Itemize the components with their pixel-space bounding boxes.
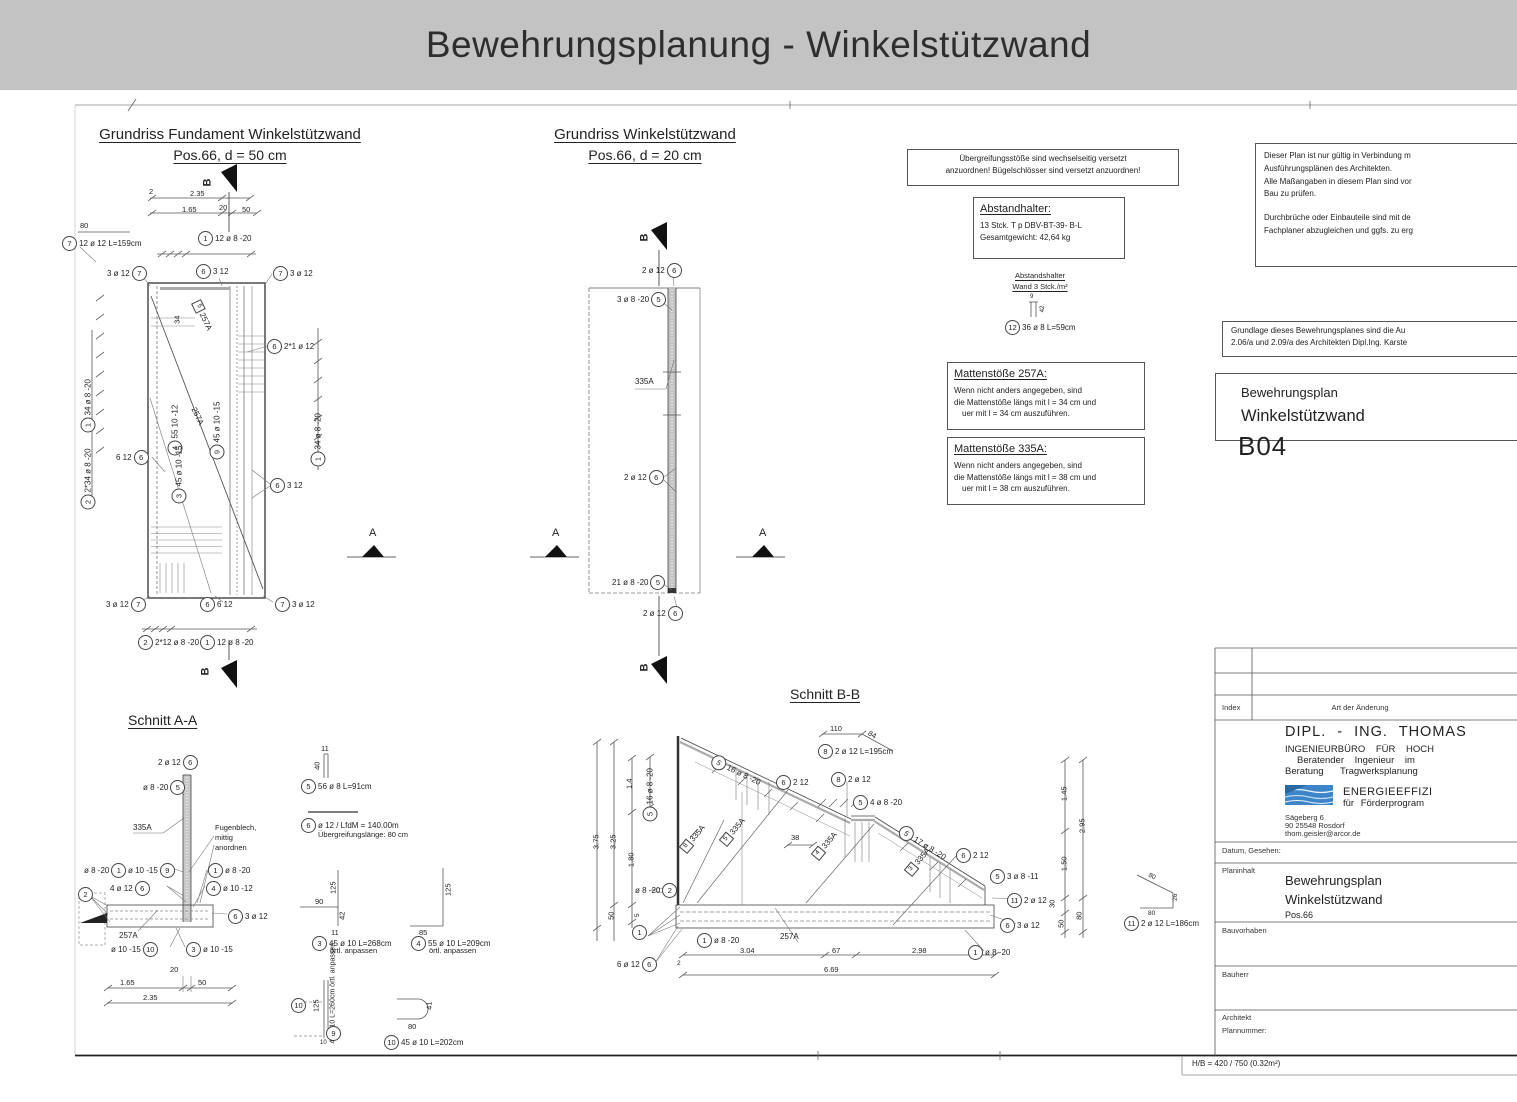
pos-bubble: 11 <box>1124 916 1139 931</box>
pos-bubble: 7 <box>132 266 147 281</box>
pos-bubble: 6 <box>301 818 316 833</box>
pos-bubble: 6 <box>668 606 683 621</box>
pos-bubble: 1 <box>111 863 126 878</box>
pos-bubble: 7 <box>62 236 77 251</box>
bauherr-label: Bauherr <box>1222 970 1249 979</box>
callout: ø 8 -205 <box>143 780 185 795</box>
wallplan-subtitle: Pos.66, d = 20 cm <box>545 147 745 163</box>
callout-text: 3 12 <box>213 268 229 276</box>
callout-text: 45 ø 10 -15 <box>213 402 221 443</box>
callout-text: ø 8 -20 <box>985 949 1010 957</box>
fundament-subtitle: Pos.66, d = 50 cm <box>86 147 374 163</box>
pos-bubble: 5 <box>643 807 658 822</box>
shape-dim: 26 <box>1173 891 1180 903</box>
shape-dim: 90 <box>315 898 323 906</box>
dim-label: 2 <box>677 961 681 968</box>
callout-vertical: 345 ø 10 -15 <box>172 424 187 504</box>
note-line: Dieser Plan ist nur gültig in Verbindung… <box>1264 150 1517 163</box>
address-line: thom.geisler@arcor.de <box>1285 829 1361 838</box>
pos-bubble: 9 <box>210 445 225 460</box>
dim-label: 1.4 <box>625 773 633 795</box>
section-a-letter: A <box>369 527 376 539</box>
note-line: Gesamtgewicht: 42,64 kg <box>980 232 1118 244</box>
plan-code: B04 <box>1238 431 1287 462</box>
note-wand: Abstandshalter Wand 3 Stck./m² <box>998 270 1082 293</box>
pos-bubble: 10 <box>291 998 306 1013</box>
schnitt-aa-title: Schnitt A-A <box>128 712 197 728</box>
dim-label: 67 <box>832 947 840 955</box>
callout: 112 ø 12 L=186cm <box>1124 916 1199 931</box>
shape-label: 9 <box>326 1026 341 1041</box>
plannummer-label: Plannummer: <box>1222 1026 1267 1035</box>
pos-bubble: 6 <box>200 597 215 612</box>
callout: 63 12 <box>196 264 229 279</box>
callout-text: 2*34 ø 8 -20 <box>84 448 92 492</box>
pos-bubble: 6 <box>956 848 971 863</box>
callout: 21 ø 8 -205 <box>612 575 665 590</box>
callout-text: ø 8 -20 <box>714 937 739 945</box>
note-stoesse: Übergreifungsstöße sind wechselseitig ve… <box>907 149 1179 186</box>
dim-label: 3.25 <box>609 829 617 855</box>
pos-bubble: 1 <box>632 925 647 940</box>
callout-vertical: 134 ø 8 -20 <box>311 397 326 467</box>
callout-text: ø 10 -12 <box>223 885 253 893</box>
shape-label: 10 <box>291 998 306 1013</box>
dim-label: 80 <box>80 222 88 230</box>
callout: 62 12 <box>956 848 989 863</box>
callout: 53 ø 8 -11 <box>990 869 1038 884</box>
dim-label: 50 <box>198 979 206 987</box>
callout: 1ø 8 -20 <box>697 933 739 948</box>
spacer-symbol <box>1029 302 1038 317</box>
note-line: Wenn nicht anders angegeben, sind <box>954 460 1138 472</box>
callout-text: 3 ø 8 -11 <box>1007 873 1038 881</box>
pos-bubble: 2 <box>662 883 677 898</box>
note-line: mittig <box>215 833 256 843</box>
callout: 1ø 8 -20 <box>208 863 250 878</box>
note-line: Wand 3 Stck./m² <box>998 281 1082 292</box>
note-line: Ausführungsplänen des Architekten. <box>1264 163 1517 176</box>
company-logo <box>1285 785 1333 805</box>
dim-label: 3.75 <box>592 829 600 855</box>
callout: 62*1 ø 12 <box>267 339 314 354</box>
pos-bubble: 6 <box>270 478 285 493</box>
schnitt-bb-title: Schnitt B-B <box>790 686 860 702</box>
section-a-markers <box>347 545 785 557</box>
callout-text: ø 12 / LfdM = 140.00m <box>318 822 399 830</box>
pos-bubble: 5 <box>301 779 316 794</box>
note-line: 13 Stck. T p DBV-BT-39- B-L <box>980 220 1118 232</box>
section-a-letter: A <box>552 527 559 539</box>
note-heading: Abstandhalter: <box>980 202 1118 218</box>
callout-text: 4 ø 8 -20 <box>870 799 902 807</box>
callout-text: 2 12 <box>973 852 989 860</box>
callout: 3 ø 127 <box>107 266 147 281</box>
callout-text: 12 ø 8 -20 <box>215 235 251 243</box>
callout: 6 126 <box>116 450 149 465</box>
callout: 4ø 10 -12 <box>206 881 253 896</box>
pos-bubble: 8 <box>831 772 846 787</box>
dim-label: 6.69 <box>824 966 839 974</box>
callout-text: 6 12 <box>116 454 132 462</box>
energy-line: für Förderprogram <box>1343 798 1424 809</box>
callout-vertical: 516 ø 8 -20 <box>643 746 658 822</box>
callout-text: 2 ø 12 <box>642 267 665 275</box>
pos-bubble: 5 <box>170 780 185 795</box>
callout-text: 2 ø 12 <box>624 474 647 482</box>
company-line: Beratender Ingenieur im <box>1297 755 1415 766</box>
callout-text: 6 12 <box>217 601 233 609</box>
callout: 3 ø 8 -205 <box>617 292 666 307</box>
note-line: anzuordnen! Bügelschlösser sind versetzt… <box>908 165 1178 177</box>
callout-text: örtl. anpassen <box>330 943 337 987</box>
pos-bubble: 1 <box>200 635 215 650</box>
callout: 73 ø 12 <box>275 597 315 612</box>
note-line: die Mattenstöße längs mit l = 38 cm und <box>954 472 1138 484</box>
callout: 66 12 <box>200 597 233 612</box>
fundament-title: Grundriss Fundament Winkelstützwand <box>86 126 374 143</box>
shape-dim: 40 <box>313 759 321 773</box>
pos-bubble: 1 <box>311 452 326 467</box>
pos-bubble: 4 <box>411 936 426 951</box>
dim-label: 42 <box>1040 304 1046 314</box>
pos-bubble: 6 <box>649 470 664 485</box>
section-a-letter: A <box>759 527 766 539</box>
pos-bubble: 11 <box>1007 893 1022 908</box>
note-matten-335a: Mattenstöße 335A: Wenn nicht anders ange… <box>947 437 1145 505</box>
dim-label: 5 <box>635 910 642 920</box>
dim-label: 1.45 <box>1060 782 1068 806</box>
note-line: Übergreifungsstöße sind wechselseitig ve… <box>908 153 1178 165</box>
shape-sub: örtl. anpassen <box>330 947 377 955</box>
callout-text: 36 ø 8 L=59cm <box>1022 324 1076 332</box>
callout-text: ø 10 -15 <box>111 946 141 954</box>
planinhalt-label: Planinhalt <box>1222 866 1255 875</box>
callout: 112 ø 8 -20 <box>200 635 253 650</box>
callout-text: 34 ø 8 -20 <box>84 379 92 415</box>
callout-vertical: 134 ø 8 -20 <box>81 363 96 433</box>
dim-label: 110 <box>830 725 842 733</box>
note-line: Fugenblech, <box>215 823 256 833</box>
callout: 54 ø 8 -20 <box>853 795 902 810</box>
callout-text: 2 ø 12 <box>158 759 181 767</box>
pos-bubble: 4 <box>206 881 221 896</box>
callout: 3ø 10 -15 <box>186 942 233 957</box>
callout: 1ø 8 -20 <box>968 945 1010 960</box>
pos-bubble: 1 <box>968 945 983 960</box>
callout-text: 2*12 ø 8 -20 <box>155 639 199 647</box>
pos-bubble: 6 <box>776 775 791 790</box>
dim-label: 2 <box>149 188 153 196</box>
pos-bubble: 1 <box>697 933 712 948</box>
planinhalt-line: Winkelstützwand <box>1285 892 1383 907</box>
titleblock-art-label: Art der Änderung <box>1260 703 1460 712</box>
note-abstandhalter: Abstandhalter: 13 Stck. T p DBV-BT-39- B… <box>973 197 1125 259</box>
callout-text: 34 ø 8 -20 <box>314 413 322 449</box>
dim-label: 3.04 <box>740 947 755 955</box>
pos-bubble: 8 <box>818 744 833 759</box>
shape-dim: 10 <box>320 1040 327 1046</box>
callout-text: ø 8 -20 <box>143 784 168 792</box>
callout-text: 3 ø 12 <box>292 601 315 609</box>
callout-vertical: 22*34 ø 8 -20 <box>81 426 96 510</box>
note-line: Alle Maßangaben in diesem Plan sind vor <box>1264 176 1517 189</box>
pos-bubble: 3 <box>172 489 187 504</box>
pos-bubble: 3 <box>186 942 201 957</box>
dim-label: 2.98 <box>912 947 927 955</box>
pos-bubble: 5 <box>853 795 868 810</box>
callout-text: 6 ø 12 <box>617 961 640 969</box>
wallplan-title: Grundriss Winkelstützwand <box>545 126 745 143</box>
callout-text: 2 ø 12 L=186cm <box>1141 920 1199 928</box>
shape-sub: örtl. anpassen <box>429 947 476 955</box>
pos-bubble: 7 <box>131 597 146 612</box>
callout: ø 10 -1510 <box>111 942 158 957</box>
pos-bubble: 6 <box>196 264 211 279</box>
callout-text: 2 ø 12 <box>643 610 666 618</box>
dim-label: 1.80 <box>627 847 635 873</box>
shape-dim: 41 <box>425 999 433 1013</box>
callout: 82 ø 12 <box>831 772 871 787</box>
callout-text: 12 ø 8 -20 <box>217 639 253 647</box>
dim-label: 50 <box>607 909 615 923</box>
plan-title-line: Winkelstützwand <box>1241 405 1517 429</box>
pos-bubble: 5 <box>650 575 665 590</box>
callout-text: 16 ø 8 -20 <box>646 768 654 804</box>
callout: 63 ø 12 <box>1000 918 1040 933</box>
pos-bubble: 6 <box>228 909 243 924</box>
shape-dim: 125 <box>444 882 452 898</box>
callout: ø 8 -201 <box>84 863 126 878</box>
dim-label: 80 <box>1075 909 1083 923</box>
callout-text: 56 ø 8 L=91cm <box>318 783 372 791</box>
pos-bubble: 9 <box>326 1026 341 1041</box>
mat-text: 257A <box>780 933 799 941</box>
note-line: uer mit l = 38 cm auszuführen. <box>954 483 1138 495</box>
company-line: Beratung Tragwerksplanung <box>1285 766 1418 777</box>
mat-text: 335A <box>133 824 152 832</box>
dim-label: 1.65 <box>120 979 135 987</box>
dim-label: 34 <box>173 313 181 327</box>
callout-text: 3 12 <box>287 482 303 490</box>
bauvorhaben-label: Bauvorhaben <box>1222 926 1267 935</box>
pos-bubble: 9 <box>160 863 175 878</box>
pos-bubble: 2 <box>81 495 96 510</box>
callout-text: 12 ø 12 L=159cm <box>79 240 141 248</box>
shape-dim: 11 <box>321 745 329 753</box>
callout: 2 ø 126 <box>643 606 683 621</box>
callout-text: 3 ø 12 <box>1017 922 1040 930</box>
pos-bubble: 7 <box>275 597 290 612</box>
section-b-letter: B <box>640 661 651 675</box>
dim-label: 30 <box>1048 897 1056 911</box>
shape-label: 556 ø 8 L=91cm <box>301 779 372 794</box>
pos-bubble: 6 <box>267 339 282 354</box>
callout-text: 45 ø 10 L=202cm <box>401 1039 463 1047</box>
bar-shape-details <box>294 754 443 1038</box>
dim-label: 1.50 <box>1060 852 1068 876</box>
callout: 63 12 <box>270 478 303 493</box>
callout: 63 ø 12 <box>228 909 268 924</box>
pos-bubble: 6 <box>642 957 657 972</box>
company-name: DIPL. - ING. THOMAS <box>1285 724 1467 740</box>
pos-bubble: 6 <box>134 450 149 465</box>
schnitt-bb-lines <box>593 731 1173 978</box>
note-line: Bau zu prüfen. <box>1264 188 1517 201</box>
callout-text: 3 ø 8 -20 <box>617 296 649 304</box>
callout-text: 2 12 <box>793 779 809 787</box>
callout: ø 10 -159 <box>128 863 175 878</box>
callout-text: 2*1 ø 12 <box>284 343 314 351</box>
pos-bubble: 6 <box>183 755 198 770</box>
note-heading: Mattenstöße 257A: <box>954 367 1138 383</box>
callout-text: 2 ø 12 <box>848 776 871 784</box>
planinhalt-line: Pos.66 <box>1285 910 1313 920</box>
note-heading: Mattenstöße 335A: <box>954 442 1138 458</box>
callout: 1 <box>632 925 647 940</box>
callout: 82 ø 12 L=195cm <box>818 744 893 759</box>
datum-label: Datum, Gesehen: <box>1222 846 1281 855</box>
sheet-format-label: H/B = 420 / 750 (0.32m²) <box>1192 1059 1280 1068</box>
callout-text: 3 ø 12 <box>106 601 129 609</box>
dim-label: 50 <box>242 206 250 214</box>
pos-bubble: 1 <box>198 231 213 246</box>
callout: 112 ø 12 <box>1007 893 1047 908</box>
dim-label: 1.65 <box>182 206 197 214</box>
callout-text: 3 ø 12 <box>290 270 313 278</box>
shape-dim: 80 <box>408 1023 416 1031</box>
pos-bubble: 12 <box>1005 320 1020 335</box>
callout: 4 ø 126 <box>110 881 150 896</box>
note-line: uer mit l = 34 cm auszuführen. <box>954 408 1138 420</box>
section-b-letter: B <box>640 231 651 245</box>
callout: 62 12 <box>776 775 809 790</box>
reinforcement-drawing-sheet: { "colors": {"header_bg": "#c3c3c3", "lo… <box>0 0 1517 1102</box>
pos-bubble: 10 <box>384 1035 399 1050</box>
callout-text: 2 ø 12 <box>1024 897 1047 905</box>
callout: ø 8 -202 <box>635 883 677 898</box>
note-line: Abstandshalter <box>998 270 1082 281</box>
callout-text: 4 ø 12 <box>110 885 133 893</box>
callout-text: ø 10 -15 <box>203 946 233 954</box>
pos-bubble: 5 <box>651 292 666 307</box>
callout: 2 ø 126 <box>624 470 664 485</box>
section-b-letter: B <box>201 665 212 679</box>
callout-text: ø 8 -20 <box>84 867 109 875</box>
shape-sub: Übergreifungslänge: 80 cm <box>318 831 408 839</box>
dim-label: 2.95 <box>1078 814 1086 838</box>
dim-label: 50 <box>1057 917 1065 931</box>
pos-bubble: 6 <box>1000 918 1015 933</box>
planinhalt-line: Bewehrungsplan <box>1285 873 1382 888</box>
note-line: Durchbrüche oder Einbauteile sind mit de <box>1264 212 1517 225</box>
dim-label: 2.35 <box>190 190 205 198</box>
callout: 2 <box>78 887 93 902</box>
shape-label: 1045 ø 10 L=202cm <box>384 1035 463 1050</box>
callout: 22*12 ø 8 -20 <box>138 635 199 650</box>
company-line: INGENIEURBÜRO FÜR HOCH <box>1285 744 1434 755</box>
pos-bubble: 5 <box>990 869 1005 884</box>
callout: 2 ø 126 <box>642 263 682 278</box>
dim-label: 9 <box>1030 294 1033 300</box>
callout: 6 ø 126 <box>617 957 657 972</box>
mat-text: 335A <box>635 378 654 386</box>
callout-text: ø 8 -20 <box>635 887 660 895</box>
dim-label: 20 <box>170 966 178 974</box>
pos-bubble: 7 <box>273 266 288 281</box>
note-grundlage: Grundlage dieses Bewehrungsplanes sind d… <box>1222 321 1517 357</box>
shape-dim: 125 <box>329 880 337 896</box>
titleblock-index-label: Index <box>1222 703 1240 712</box>
dim-label: 38 <box>791 834 799 842</box>
architekt-label: Architekt <box>1222 1013 1251 1022</box>
section-b-letter: B <box>203 176 214 190</box>
pos-bubble: 10 <box>143 942 158 957</box>
callout: 1236 ø 8 L=59cm <box>1005 320 1076 335</box>
callout: 73 ø 12 <box>273 266 313 281</box>
callout-text: ø 8 -20 <box>225 867 250 875</box>
mat-text: 257A <box>119 932 138 940</box>
shape-dim: 125 <box>312 998 320 1014</box>
note-line: anordnen <box>215 843 256 853</box>
callout-text: ø 10 -15 <box>128 867 158 875</box>
callout-text: 2 ø 12 L=195cm <box>835 748 893 756</box>
note-line: 2.06/a und 2.09/a des Architekten Dipl.I… <box>1231 337 1517 349</box>
callout-text: 21 ø 8 -20 <box>612 579 648 587</box>
callout: 2 ø 126 <box>158 755 198 770</box>
pos-bubble: 3 <box>312 936 327 951</box>
note-line: Grundlage dieses Bewehrungsplanes sind d… <box>1231 325 1517 337</box>
fugenblech-note: Fugenblech, mittig anordnen <box>215 823 256 853</box>
pos-bubble: 6 <box>667 263 682 278</box>
callout-text: 45 ø 10 -15 <box>175 446 183 487</box>
note-line: die Mattenstöße längs mit l = 34 cm und <box>954 397 1138 409</box>
pos-bubble: 2 <box>138 635 153 650</box>
note-matten-257a: Mattenstöße 257A: Wenn nicht anders ange… <box>947 362 1145 430</box>
note-line: Fachplaner abzugleichen und ggfs. zu erg <box>1264 225 1517 238</box>
note-line: Wenn nicht anders angegeben, sind <box>954 385 1138 397</box>
dim-label: 20 <box>219 204 227 212</box>
energy-line: ENERGIEEFFIZI <box>1343 786 1433 798</box>
plan-title-line: Bewehrungsplan <box>1241 384 1517 403</box>
callout: 712 ø 12 L=159cm <box>62 236 141 251</box>
pos-bubble: 2 <box>78 887 93 902</box>
dim-label: 2.35 <box>143 994 158 1002</box>
note-validity: Dieser Plan ist nur gültig in Verbindung… <box>1255 143 1517 267</box>
callout-vertical: 945 ø 10 -15 <box>210 380 225 460</box>
callout-text: 3 ø 12 <box>245 913 268 921</box>
callout: 3 ø 127 <box>106 597 146 612</box>
callout-text: 3 ø 12 <box>107 270 130 278</box>
shape-dim: 42 <box>338 909 346 923</box>
pos-bubble: 1 <box>208 863 223 878</box>
callout: 112 ø 8 -20 <box>198 231 251 246</box>
pos-bubble: 6 <box>135 881 150 896</box>
